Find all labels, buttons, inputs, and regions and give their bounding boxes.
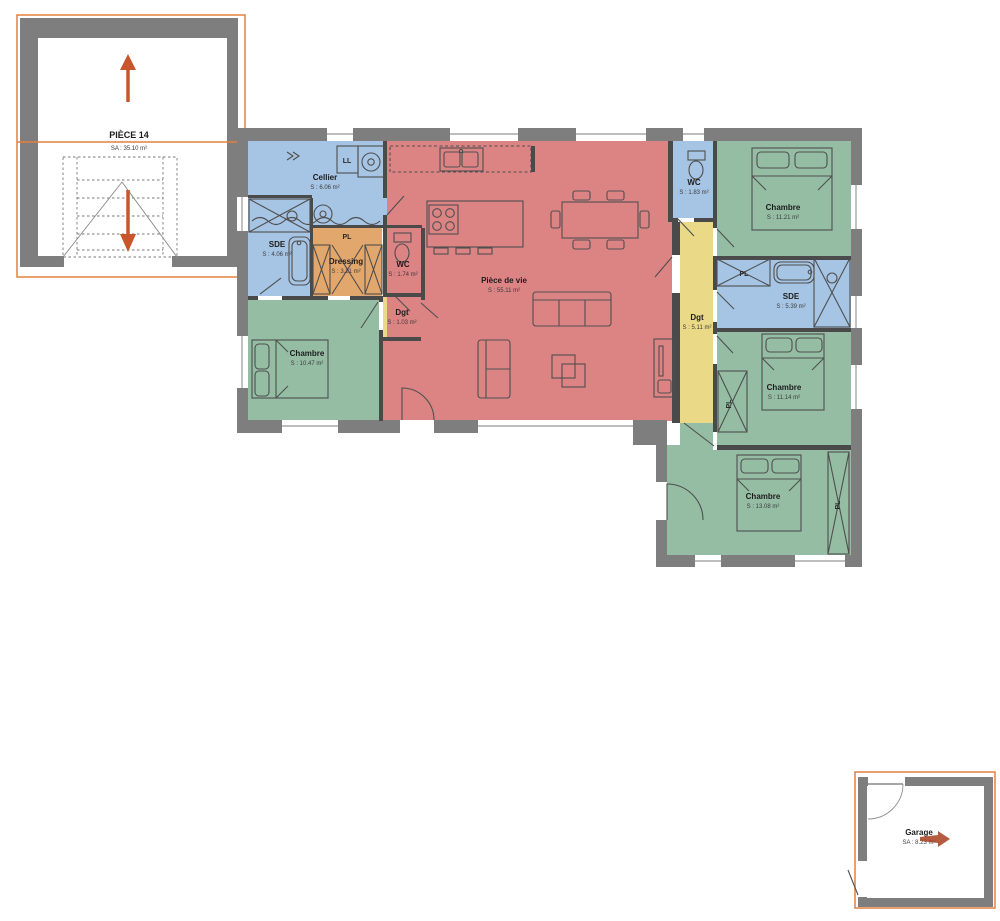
room-label: Dgt (395, 308, 409, 317)
room-area: S : 5.11 m² (683, 325, 712, 331)
room-label: SDE (269, 240, 286, 249)
entrance-opening (400, 420, 434, 433)
window (478, 420, 633, 433)
room-area: S : 1.03 m² (387, 320, 416, 326)
room-label: Chambre (746, 492, 781, 501)
window (327, 128, 353, 141)
room-area: S : 13.08 m² (747, 504, 780, 510)
window (851, 185, 862, 229)
window (576, 128, 646, 141)
room-label: SDE (783, 292, 800, 301)
room-dgt2 (680, 222, 713, 423)
room-label: Dressing (329, 257, 363, 266)
room-area: S : 5.39 m² (776, 304, 805, 310)
room-label: Pièce de vie (481, 276, 527, 285)
room-label: Dgt (690, 313, 704, 322)
window (695, 555, 721, 567)
room-piece-de-vie (387, 141, 672, 421)
room-area: S : 3.21 m² (331, 269, 360, 275)
window (851, 296, 862, 328)
room-area: S : 55.11 m² (488, 288, 520, 294)
floor-plan-page: PIÈCE 14 SA : 35.10 m² (0, 0, 1000, 921)
closet-label: PL (726, 399, 733, 409)
annex-area: SA : 35.10 m² (111, 146, 147, 152)
door-opening (656, 482, 667, 520)
closet-label: PL (835, 500, 842, 510)
window (795, 555, 845, 567)
window (237, 197, 248, 231)
room-area: S : 10.47 m² (291, 361, 324, 367)
window (237, 336, 248, 388)
room-area: S : 11.14 m² (768, 395, 800, 401)
door-opening (868, 777, 905, 786)
window (851, 365, 862, 409)
closet-label: PL (343, 234, 353, 241)
room-label: Cellier (313, 173, 337, 182)
room-label: Chambre (766, 203, 801, 212)
annex-piece14: PIÈCE 14 SA : 35.10 m² (17, 15, 245, 277)
room-area: S : 11.21 m² (767, 215, 799, 221)
room-label: Chambre (290, 349, 325, 358)
room-area: S : 6.06 m² (310, 185, 339, 191)
garage: Garage SA : 8.23 m² (848, 772, 995, 908)
washing-machine-label: LL (343, 158, 352, 165)
room-area: S : 1.74 m² (388, 272, 417, 278)
window (282, 420, 338, 433)
room-piece-de-vie-ext (383, 341, 387, 421)
window (450, 128, 518, 141)
room-label: WC (687, 178, 701, 187)
room-area: S : 1.83 m² (679, 190, 708, 196)
garage-name: Garage (905, 828, 933, 837)
main-floor-plan: Cellier S : 6.06 m² SDE S : 4.06 m² PL D… (237, 128, 862, 567)
closet-label: PL (740, 271, 750, 278)
room-chambre2 (717, 141, 851, 256)
room-label: WC (396, 260, 410, 269)
door-opening (858, 861, 867, 897)
room-label: Chambre (767, 383, 802, 392)
annex-name: PIÈCE 14 (109, 130, 149, 140)
room-area: S : 4.06 m² (262, 252, 291, 258)
window (683, 128, 704, 141)
